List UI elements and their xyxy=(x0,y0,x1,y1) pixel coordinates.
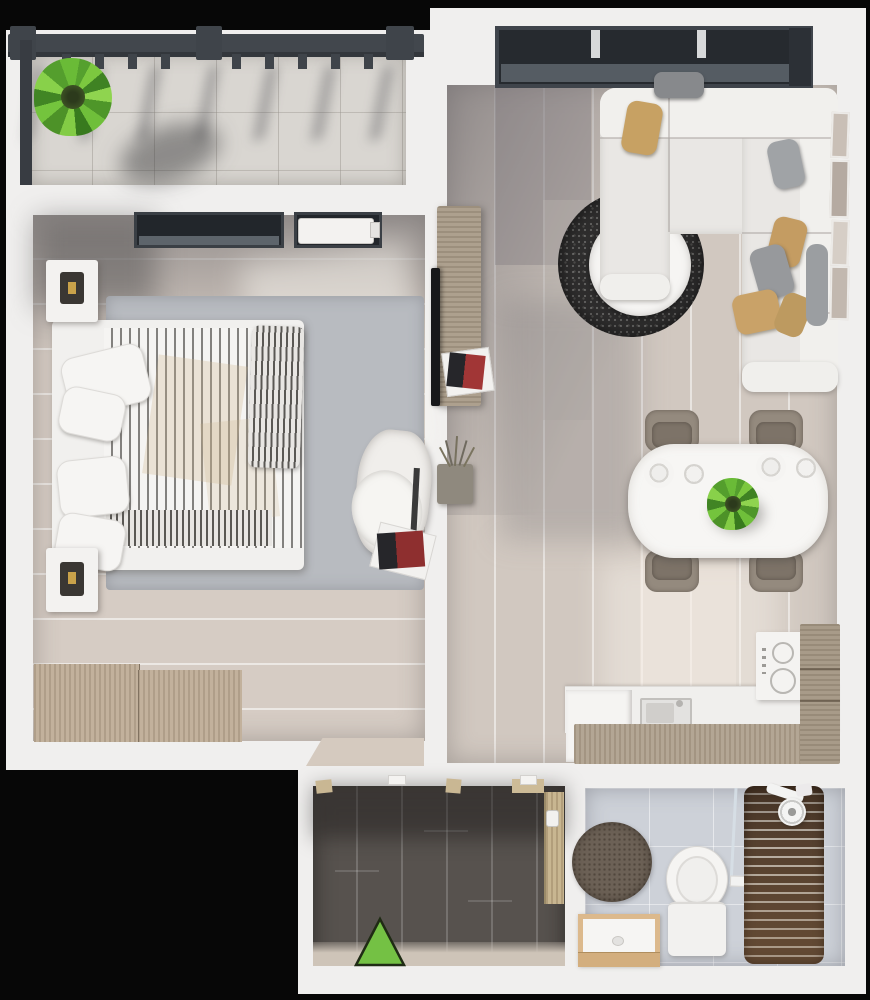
tv xyxy=(431,268,440,406)
railing-post xyxy=(386,26,414,60)
cooktop-burner xyxy=(770,668,796,694)
cooktop-knobs xyxy=(762,648,766,674)
railing-baluster xyxy=(364,54,373,69)
bedroom-window-sill xyxy=(139,236,279,245)
railing-baluster xyxy=(331,54,340,69)
balcony-plant xyxy=(34,58,112,136)
cooktop-burner xyxy=(772,642,794,664)
wardrobe-left xyxy=(34,664,140,742)
picture-frame xyxy=(830,220,850,267)
hallway-floor xyxy=(313,786,565,966)
vanity-sink-drain xyxy=(612,936,624,946)
bedroom-doorway-floor xyxy=(306,738,424,766)
window-end-frame xyxy=(789,28,811,86)
side-plate xyxy=(796,458,816,478)
side-plate xyxy=(684,464,704,484)
picture-frame xyxy=(829,160,849,218)
hall-threshold xyxy=(313,942,565,966)
picture-frame xyxy=(830,266,850,320)
door-frame-block xyxy=(445,778,461,793)
railing-baluster xyxy=(265,54,274,69)
bed-folded-blanket xyxy=(248,325,305,469)
door-handle xyxy=(546,810,559,827)
sofa-back-tray xyxy=(654,72,704,98)
pillow xyxy=(55,455,131,520)
plant-core xyxy=(61,85,84,108)
table-lamp-shade xyxy=(68,282,76,294)
cabinet-divider xyxy=(800,700,840,702)
radiator xyxy=(298,218,374,244)
balcony-side-wall xyxy=(20,40,32,185)
kitchen-cabinet-front xyxy=(574,724,808,764)
window-mullion xyxy=(591,30,600,58)
sink-faucet xyxy=(676,700,683,707)
dinner-plate xyxy=(756,452,786,482)
sideboard-magazine-cover xyxy=(446,352,485,390)
railing-baluster xyxy=(232,54,241,69)
dining-plant xyxy=(707,478,759,530)
picture-frame xyxy=(830,112,850,159)
shower-head xyxy=(778,798,806,826)
bed-foot-blanket xyxy=(106,510,272,546)
bathroom-rug xyxy=(572,822,652,902)
dinner-plate xyxy=(644,458,674,488)
railing-baluster xyxy=(298,54,307,69)
magazine-cover xyxy=(377,530,425,569)
sink-basin xyxy=(646,703,674,723)
door-top-tab xyxy=(520,775,537,785)
kitchen-tall-cabinet xyxy=(800,624,840,764)
railing-baluster xyxy=(128,54,137,69)
railing-post xyxy=(196,26,222,60)
floor-plan xyxy=(0,0,870,1000)
sofa-armrest-pad xyxy=(806,244,828,326)
radiator-valve xyxy=(370,222,380,238)
sofa-armrest-chaise xyxy=(600,274,670,300)
door-frame-block xyxy=(315,779,332,794)
interior-door xyxy=(544,792,564,904)
decor-planter xyxy=(437,464,473,504)
sofa-armrest-right-end xyxy=(742,362,838,392)
toilet-tank xyxy=(668,902,726,956)
toilet-seat xyxy=(676,856,718,904)
window-mullion xyxy=(697,30,706,58)
sofa-seam xyxy=(668,90,670,232)
railing-baluster xyxy=(161,54,170,69)
wardrobe-right xyxy=(138,670,242,742)
cabinet-divider xyxy=(800,668,840,670)
table-lamp-shade xyxy=(68,572,76,584)
entrance-triangle-icon xyxy=(352,916,408,968)
plant-core xyxy=(725,496,741,512)
vanity-drawer xyxy=(578,952,660,967)
door-top-tab xyxy=(388,775,406,785)
shower-shelf xyxy=(795,783,813,797)
